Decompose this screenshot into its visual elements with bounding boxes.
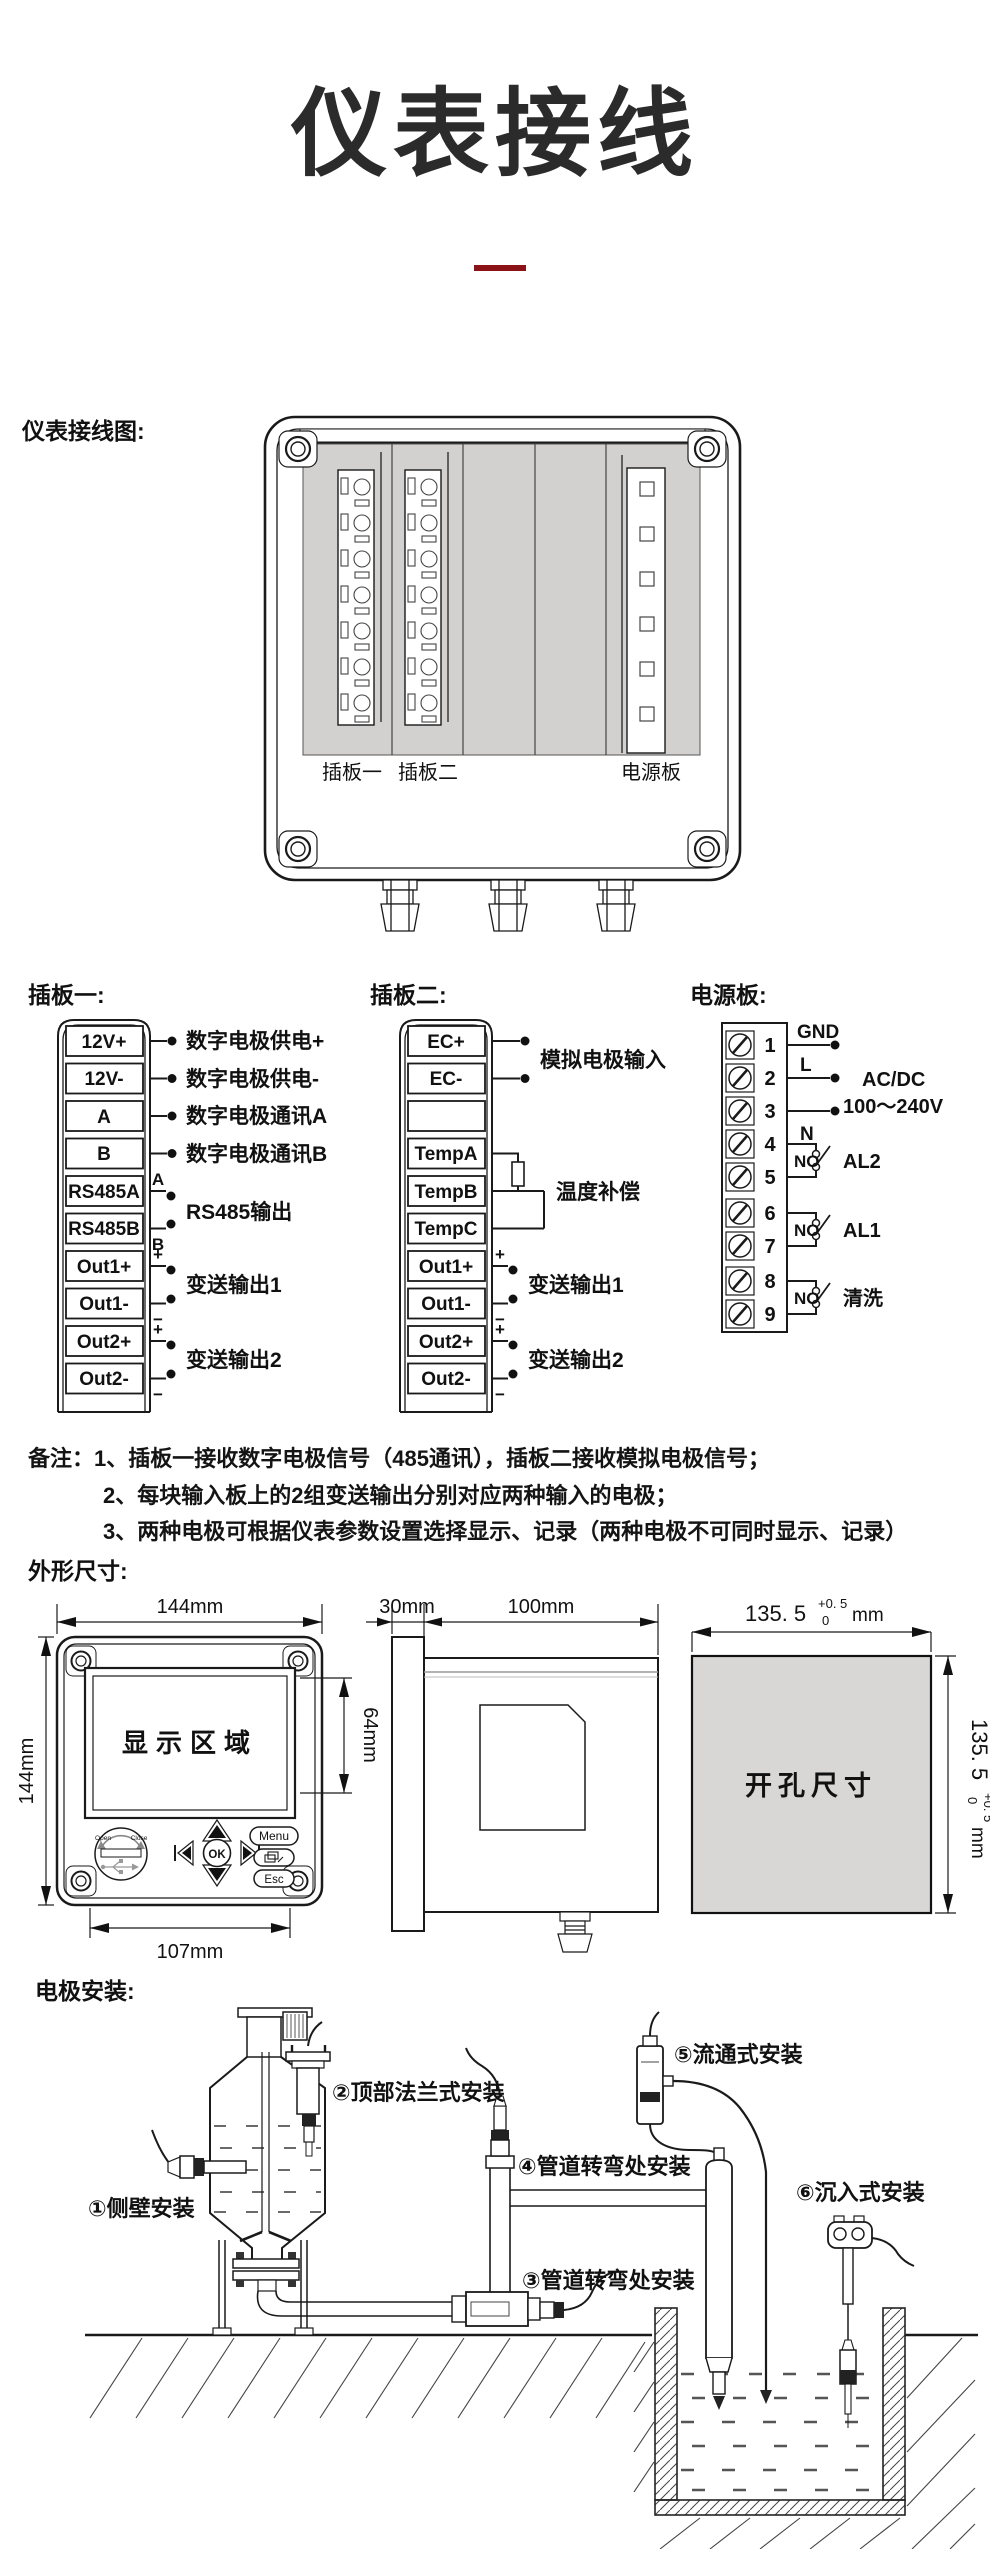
install-label-2: ②顶部法兰式安装 (332, 2080, 505, 2105)
install-label-1: ①侧壁安装 (88, 2196, 195, 2221)
page: 仪表接线 仪表接线图: (0, 0, 990, 2549)
electrode-pipe-top (466, 2048, 514, 2168)
cable (650, 2124, 716, 2153)
ground-right (634, 2335, 978, 2549)
bottom-valve (233, 2252, 299, 2291)
column-tee (706, 2148, 732, 2410)
pool (655, 2308, 905, 2549)
install-label-5: ⑤流通式安装 (674, 2042, 803, 2067)
install-label-6: ⑥沉入式安装 (796, 2180, 925, 2205)
ground-left (85, 2335, 652, 2418)
install-label-3: ③管道转弯处安装 (522, 2268, 695, 2293)
electrode-sidewall (152, 2130, 246, 2178)
install-label-4: ④管道转弯处安装 (518, 2154, 691, 2179)
motor-icon (283, 2012, 307, 2040)
cable (872, 2238, 914, 2266)
branch-pipe (510, 2190, 706, 2206)
installation-drawing: ①侧壁安装 ②顶部法兰式安装 ③管道转弯处安装 ④管道转弯处安装 ⑤流通式安装 … (0, 0, 990, 2549)
electrode-top-flange (286, 2022, 330, 2156)
pipe-elbow (258, 2291, 453, 2316)
